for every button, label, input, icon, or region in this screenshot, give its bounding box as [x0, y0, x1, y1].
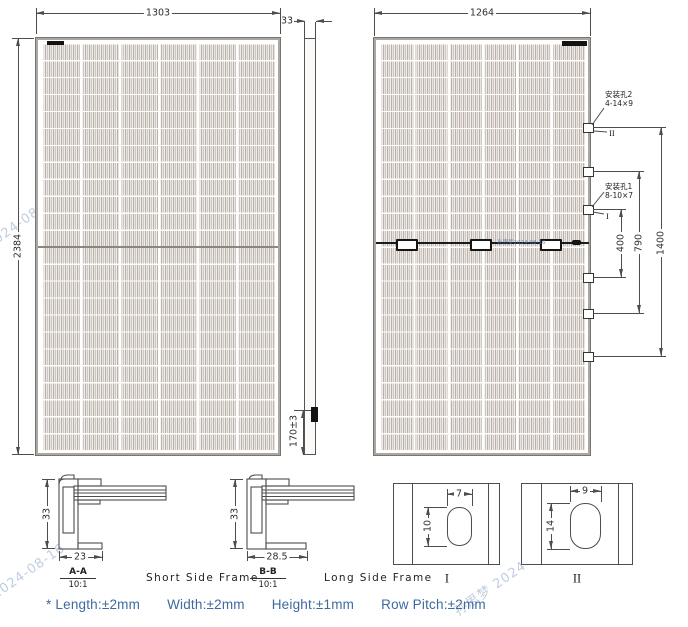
extension-line — [601, 486, 602, 502]
front-label-mark — [47, 41, 64, 45]
dim-aa-height-label: 33 — [42, 506, 52, 522]
detail-i-label: I — [445, 572, 449, 587]
extension-line — [315, 22, 316, 38]
mounting-hole — [583, 205, 594, 215]
mounting-hole — [583, 123, 594, 133]
dim-junction-offset-line — [303, 410, 304, 455]
mounting-hole-1-callout: 安装孔1 8-10×7 — [605, 182, 633, 200]
tolerance-width: Width:±2mm — [167, 597, 245, 612]
dim-front-height-label: 2384 — [13, 232, 23, 260]
section-bb-ref-label: B-B — [250, 567, 286, 579]
side-view-edge — [304, 38, 316, 455]
dim-detail-ii-width-label: 9 — [580, 486, 590, 496]
frame-edge-line — [412, 484, 413, 564]
frame-edge-line — [488, 484, 489, 564]
dim-spacing-inner-label: 400 — [616, 232, 626, 254]
dim-aa-width-label: 23 — [72, 552, 88, 562]
mounting-hole-2-callout: 安装孔2 4-14×9 — [605, 90, 633, 108]
mounting-hole — [583, 309, 594, 319]
extension-line — [593, 127, 666, 128]
extension-line — [547, 549, 570, 550]
dim-front-width-label: 1303 — [144, 8, 172, 18]
junction-box — [470, 239, 492, 251]
extension-line — [593, 277, 626, 278]
mounting-hole — [583, 352, 594, 362]
junction-box — [396, 239, 418, 251]
dim-junction-offset-label: 170±3 — [289, 415, 299, 447]
watermark-tiny: 孙思梦2024-08-16 — [497, 238, 545, 246]
detail-ii-slot — [570, 503, 601, 549]
front-view-panel — [36, 38, 280, 455]
extension-line — [590, 8, 591, 36]
dim-spacing-outer-label: 1400 — [656, 229, 666, 257]
side-junction-box — [311, 407, 318, 422]
tolerance-height: Height:±1mm — [272, 597, 354, 612]
extension-line — [593, 356, 666, 357]
section-bb-ref: B-B 10:1 — [250, 567, 286, 590]
dim-detail-i-width-label: 7 — [454, 489, 464, 499]
front-middle-gap — [38, 246, 278, 248]
mounting-hole — [583, 273, 594, 283]
section-aa-ref-label: A-A — [60, 567, 96, 579]
dim-bb-height-label: 33 — [230, 506, 240, 522]
dim-side-thickness-label: 33 — [281, 16, 293, 26]
dim-detail-i-height-label: 10 — [423, 518, 433, 534]
section-aa-scale: 10:1 — [60, 579, 96, 590]
dim-rear-width-label: 1264 — [468, 8, 496, 18]
dim-side-thickness-arrow-right — [316, 21, 332, 22]
dim-spacing-mid-label: 790 — [634, 232, 644, 254]
mounting-hole — [583, 167, 594, 177]
section-bb-scale: 10:1 — [250, 579, 286, 590]
detail-ref-ii-marker: II — [609, 128, 615, 138]
extension-line — [102, 551, 103, 561]
frame-edge-line — [618, 484, 619, 564]
section-aa-ref: A-A 10:1 — [60, 567, 96, 590]
section-aa-title: Short Side Frame — [146, 572, 259, 584]
detail-i-slot — [447, 507, 472, 546]
watermark-text: 孙思梦 2024-08-16 — [0, 538, 68, 627]
tolerance-length: * Length:±2mm — [46, 597, 140, 612]
mounting-hole-2-name: 安装孔2 — [605, 90, 633, 99]
extension-line — [593, 313, 644, 314]
dim-detail-ii-height-label: 14 — [546, 518, 556, 534]
extension-line — [307, 551, 308, 561]
rear-label-mark — [562, 41, 587, 46]
section-bb-profile — [247, 475, 354, 549]
cable-connector — [572, 240, 581, 245]
extension-line — [304, 22, 305, 38]
tolerance-note: * Length:±2mm Width:±2mm Height:±1mm Row… — [46, 597, 486, 612]
frame-edge-line — [541, 484, 542, 564]
extension-line — [424, 546, 447, 547]
extension-line — [472, 489, 473, 506]
mounting-hole-1-spec: 8-10×7 — [605, 191, 633, 200]
section-aa-profile — [59, 475, 166, 549]
detail-ref-i-marker: I — [606, 211, 609, 221]
dim-bb-width-label: 28.5 — [264, 552, 289, 562]
technical-drawing-canvas: 孙思梦 2024-08-16 孙思梦 2024-08-16 孙思梦 2024-0… — [0, 0, 688, 627]
section-bb-title: Long Side Frame — [324, 572, 433, 584]
tolerance-row-pitch: Row Pitch:±2mm — [381, 597, 486, 612]
mounting-hole-2-spec: 4-14×9 — [605, 99, 633, 108]
mounting-hole-1-name: 安装孔1 — [605, 182, 633, 191]
detail-ii-label: II — [573, 572, 581, 587]
